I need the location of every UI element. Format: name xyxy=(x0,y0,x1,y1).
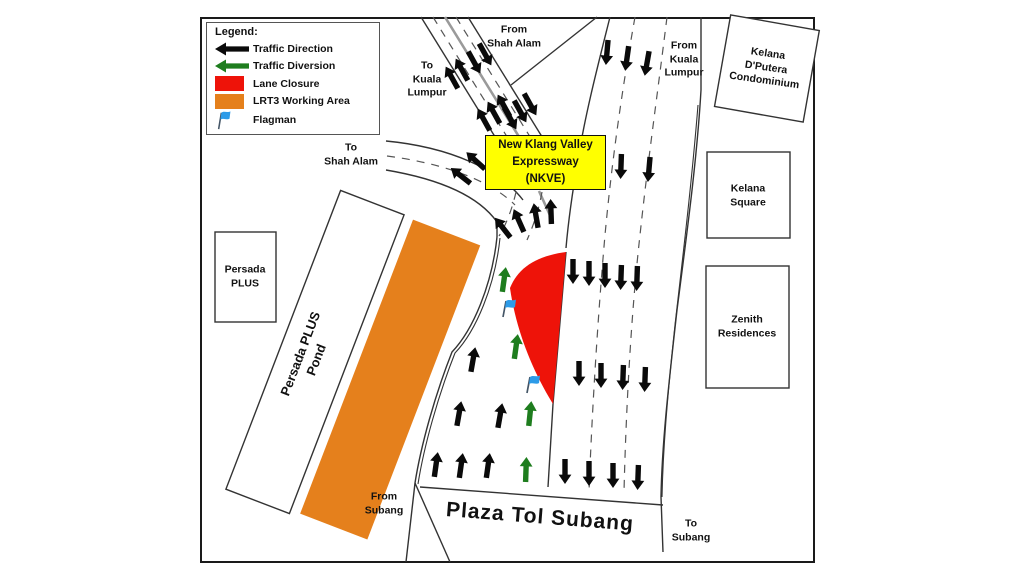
legend-label: Lane Closure xyxy=(253,78,320,90)
label-from-subang: From Subang xyxy=(365,490,404,517)
red-swatch-icon xyxy=(215,76,253,91)
label-to-kuala-lumpur: To Kuala Lumpur xyxy=(407,60,446,101)
traffic-direction-arrow xyxy=(567,259,580,284)
traffic-direction-arrow xyxy=(595,363,608,388)
traffic-direction-arrow xyxy=(453,452,469,479)
legend-label: Traffic Direction xyxy=(253,43,333,55)
legend: Legend: Traffic Direction Traffic Divers… xyxy=(206,22,380,135)
green-arrow-icon xyxy=(215,59,253,73)
label-to-subang: To Subang xyxy=(672,517,711,544)
label-persada-plus: Persada PLUS xyxy=(225,263,266,290)
legend-item-lane-closure: Lane Closure xyxy=(215,75,371,93)
orange-swatch-icon xyxy=(215,94,253,109)
legend-title: Legend: xyxy=(215,26,371,38)
traffic-direction-arrow xyxy=(480,452,496,479)
traffic-direction-arrow xyxy=(641,156,656,182)
traffic-direction-arrow xyxy=(630,266,644,291)
traffic-direction-arrow xyxy=(614,265,628,290)
traffic-direction-arrow xyxy=(638,367,652,392)
traffic-diversion-arrow xyxy=(522,400,537,426)
map-drawing xyxy=(0,0,1024,576)
traffic-direction-arrow xyxy=(616,365,630,390)
traffic-direction-arrow xyxy=(614,154,628,179)
traffic-direction-arrow xyxy=(619,45,635,72)
traffic-direction-arrow xyxy=(428,451,444,478)
traffic-direction-arrow xyxy=(638,50,655,77)
legend-item-traffic-diversion: Traffic Diversion xyxy=(215,58,371,76)
flag-icon xyxy=(215,110,253,130)
traffic-diversion-arrow xyxy=(519,457,533,482)
traffic-direction-arrow xyxy=(559,459,572,484)
label-to-shah-alam: To Shah Alam xyxy=(324,141,378,168)
traffic-direction-arrow xyxy=(447,163,475,188)
legend-item-flagman: Flagman xyxy=(215,110,371,130)
traffic-direction-arrow xyxy=(544,199,558,224)
traffic-direction-arrow xyxy=(492,402,509,429)
traffic-diversion-map: Legend: Traffic Direction Traffic Divers… xyxy=(0,0,1024,576)
nkve-label-box: New Klang Valley Expressway (NKVE) xyxy=(485,135,606,190)
legend-item-traffic-direction: Traffic Direction xyxy=(215,40,371,58)
traffic-direction-arrow xyxy=(527,202,544,229)
traffic-direction-arrow xyxy=(573,361,586,386)
black-arrow-icon xyxy=(215,42,253,56)
legend-label: Traffic Diversion xyxy=(253,60,335,72)
traffic-direction-arrow xyxy=(451,400,468,427)
legend-label: LRT3 Working Area xyxy=(253,95,350,107)
legend-item-lrt3-working-area: LRT3 Working Area xyxy=(215,93,371,111)
label-kelana-square: Kelana Square xyxy=(730,182,766,209)
legend-label: Flagman xyxy=(253,114,296,126)
traffic-direction-arrow xyxy=(631,465,645,490)
traffic-diversion-arrow xyxy=(496,266,512,293)
traffic-direction-arrow xyxy=(599,263,612,288)
label-zenith-residences: Zenith Residences xyxy=(718,313,776,340)
label-from-shah-alam: From Shah Alam xyxy=(487,23,541,50)
traffic-direction-arrow xyxy=(583,261,596,286)
flagman-icon xyxy=(527,376,540,394)
traffic-direction-arrow xyxy=(607,463,620,488)
traffic-direction-arrow xyxy=(465,346,482,373)
traffic-direction-arrow xyxy=(583,461,596,486)
label-from-kuala-lumpur: From Kuala Lumpur xyxy=(664,40,703,81)
